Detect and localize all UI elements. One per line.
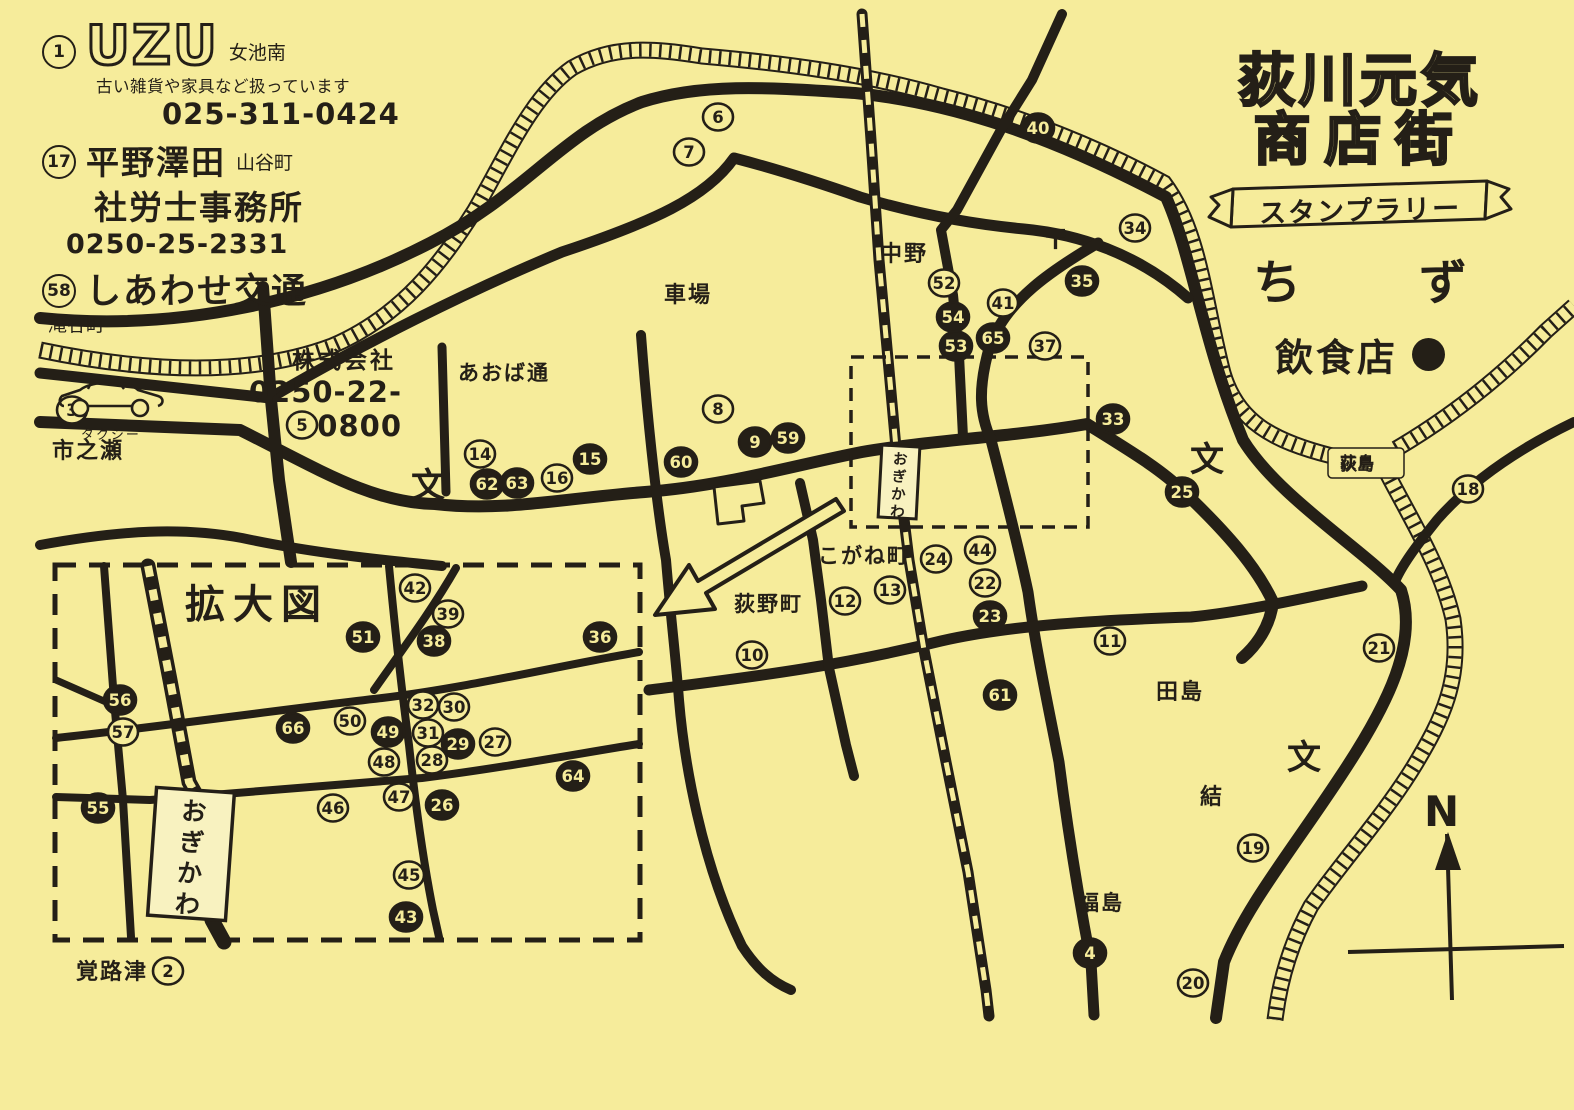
- stamp-marker-number: 43: [395, 908, 418, 927]
- road: [56, 680, 106, 702]
- stamp-marker-number: 22: [974, 574, 997, 593]
- road: [1394, 422, 1574, 584]
- ad-name: しあわせ交通: [86, 274, 308, 311]
- map-word-row: ち ず: [1205, 243, 1515, 313]
- stamp-marker-number: 61: [989, 686, 1012, 705]
- station-inset: おぎかわ: [148, 787, 235, 921]
- stamp-marker-16: 16: [542, 465, 572, 492]
- stamp-marker-65: 65: [977, 324, 1009, 353]
- stamp-marker-number: 20: [1182, 974, 1205, 993]
- legend-restaurant-label: 飲食店: [1275, 327, 1398, 382]
- ad-shiawase-kotsu: 58 しあわせ交通 滝谷町 タクシー 株式会社 0250: [42, 274, 402, 444]
- stamp-marker-41: 41: [988, 290, 1018, 317]
- map-title-line1: 荻川元気: [1205, 52, 1515, 111]
- place-label: 車場: [664, 283, 712, 308]
- ad-office-label: 社労士事務所: [94, 181, 402, 229]
- road: [104, 566, 131, 937]
- ad-area-label: 滝谷町: [48, 310, 402, 343]
- stamp-marker-35: 35: [1066, 267, 1098, 296]
- post-office-symbol: 〒: [1042, 225, 1069, 256]
- river-island-label: 荻島: [1340, 454, 1374, 475]
- stamp-marker-60: 60: [665, 448, 697, 477]
- ad-hirano-sawada: 17 平野澤田 山谷町 社労士事務所 0250-25-2331: [42, 145, 402, 260]
- ad-uzu: 1 UZU 女池南 古い雑貨や家具など扱っています 025-311-0424: [42, 22, 402, 131]
- stamp-marker-42: 42: [400, 575, 430, 602]
- stamp-marker-number: 47: [388, 788, 411, 807]
- stamp-marker-number: 16: [546, 469, 569, 488]
- stamp-marker-29: 29: [442, 730, 474, 759]
- stamp-marker-number: 30: [443, 698, 466, 717]
- ad-phone: 0250-25-2331: [66, 229, 402, 260]
- stamp-marker-39: 39: [433, 601, 463, 628]
- map-title-line2: 商店街: [1205, 111, 1515, 170]
- legend: 飲食店: [1205, 327, 1515, 382]
- place-label: 福島: [1077, 891, 1124, 915]
- stamp-marker-number: 59: [777, 429, 800, 448]
- place-label: 荻野町: [734, 592, 803, 616]
- stamp-marker-number: 31: [417, 724, 440, 743]
- stamp-marker-50: 50: [335, 708, 365, 735]
- stamp-marker-12: 12: [830, 588, 860, 615]
- stamp-marker-number: 29: [447, 735, 470, 754]
- stamp-marker-63: 63: [501, 469, 533, 498]
- stamp-marker-14: 14: [465, 441, 495, 468]
- stamp-marker-61: 61: [984, 681, 1016, 710]
- taxi-label: タクシー: [42, 424, 180, 443]
- stamp-marker-number: 65: [982, 329, 1005, 348]
- stamp-marker-number: 34: [1124, 219, 1147, 238]
- road: [40, 531, 442, 566]
- stamp-marker-number: 44: [969, 541, 992, 560]
- stamp-marker-57: 57: [108, 719, 138, 746]
- stamp-marker-number: 41: [992, 294, 1015, 313]
- stamp-marker-number: 28: [421, 751, 444, 770]
- stamp-marker-number: 46: [322, 799, 345, 818]
- inset-title: 拡大図: [185, 582, 329, 628]
- stamp-marker-number: 11: [1099, 632, 1122, 651]
- stamp-marker-51: 51: [347, 623, 379, 652]
- stamp-marker-31: 31: [413, 720, 443, 747]
- stamp-marker-number: 14: [469, 445, 492, 464]
- stamp-marker-number: 26: [431, 796, 454, 815]
- stamp-marker-number: 51: [352, 628, 375, 647]
- station-main: おぎかわ: [878, 445, 920, 521]
- building-outline: [714, 481, 764, 524]
- compass-north-label: N: [1424, 787, 1459, 836]
- inset-dashed-box: [55, 565, 640, 940]
- sponsor-ads: 1 UZU 女池南 古い雑貨や家具など扱っています 025-311-0424 1…: [42, 22, 402, 457]
- stamp-marker-number: 27: [484, 733, 507, 752]
- stamp-marker-number: 24: [925, 550, 948, 569]
- stamp-marker-number: 54: [942, 308, 965, 327]
- stamp-marker-40: 40: [1022, 114, 1054, 143]
- school-symbol: 文: [1190, 440, 1224, 480]
- place-label: 中野: [880, 242, 928, 267]
- stamp-marker-56: 56: [104, 686, 136, 715]
- stamp-marker-54: 54: [937, 303, 969, 332]
- banner-label: スタンプラリー: [1205, 184, 1516, 231]
- stamp-marker-number: 66: [282, 719, 305, 738]
- ad-description: 古い雑貨や家具など扱っています: [96, 73, 402, 97]
- stamp-marker-number: 18: [1457, 480, 1480, 499]
- stamp-marker-number: 50: [339, 712, 362, 731]
- stamp-marker-number: 25: [1171, 483, 1194, 502]
- stamp-marker-number: 12: [834, 592, 857, 611]
- stamp-marker-number: 56: [109, 691, 132, 710]
- stamp-marker-number: 35: [1071, 272, 1094, 291]
- stamp-marker-48: 48: [369, 749, 399, 776]
- ad-area-label: 女池南: [229, 38, 286, 71]
- stamp-marker-number: 10: [741, 646, 764, 665]
- stamp-marker-6: 6: [703, 104, 733, 131]
- uzu-logo: UZU: [86, 22, 219, 71]
- stamp-marker-number: 2: [162, 962, 173, 981]
- stamp-marker-number: 36: [589, 628, 612, 647]
- stamp-rally-map-sheet: おぎかわ おぎかわ N 市之瀬あおば通車場中野こがね町荻野町田島結福島覚路津荻島…: [0, 0, 1574, 1110]
- ad-phone: 025-311-0424: [162, 97, 402, 131]
- ad-company-label: 株式会社: [184, 341, 396, 375]
- stamp-marker-number: 64: [562, 767, 585, 786]
- stamp-marker-20: 20: [1178, 970, 1208, 997]
- stamp-number-badge: 17: [42, 145, 76, 179]
- stamp-marker-number: 9: [749, 433, 760, 452]
- school-symbol: 文: [411, 466, 445, 506]
- stamp-marker-49: 49: [372, 718, 404, 747]
- stamp-marker-number: 33: [1102, 410, 1125, 429]
- stamp-marker-38: 38: [418, 627, 450, 656]
- place-label: 覚路津: [76, 959, 148, 985]
- stamp-marker-number: 23: [979, 607, 1002, 626]
- stamp-marker-number: 53: [945, 337, 968, 356]
- stamp-marker-64: 64: [557, 762, 589, 791]
- ad-area-label: 山谷町: [236, 148, 293, 181]
- stamp-marker-number: 39: [437, 605, 460, 624]
- stamp-marker-number: 45: [398, 866, 421, 885]
- stamp-marker-number: 13: [879, 581, 902, 600]
- stamp-number-badge: 1: [42, 35, 76, 69]
- stamp-marker-27: 27: [480, 729, 510, 756]
- stamp-marker-59: 59: [772, 424, 804, 453]
- stamp-marker-number: 4: [1084, 944, 1095, 963]
- stamp-marker-18: 18: [1453, 476, 1483, 503]
- taxi-icon: [52, 372, 170, 420]
- stamp-marker-7: 7: [674, 139, 704, 166]
- stamp-marker-number: 57: [112, 723, 135, 742]
- stamp-marker-number: 6: [712, 108, 723, 127]
- stamp-marker-32: 32: [408, 692, 438, 719]
- stamp-marker-4: 4: [1074, 939, 1106, 968]
- stamp-marker-number: 32: [412, 696, 435, 715]
- stamp-marker-number: 21: [1368, 639, 1391, 658]
- stamp-marker-number: 38: [423, 632, 446, 651]
- map-word-right: ず: [1419, 243, 1467, 313]
- stamp-marker-36: 36: [584, 623, 616, 652]
- place-label: こがね町: [818, 544, 910, 568]
- school-symbol: 文: [1287, 738, 1321, 778]
- stamp-marker-2: 2: [153, 958, 183, 985]
- stamp-marker-number: 15: [579, 450, 602, 469]
- stamp-marker-number: 62: [476, 475, 499, 494]
- stamp-marker-number: 52: [933, 274, 956, 293]
- ad-name: 平野澤田: [86, 146, 226, 181]
- stamp-marker-46: 46: [318, 795, 348, 822]
- stamp-marker-21: 21: [1364, 635, 1394, 662]
- stamp-marker-23: 23: [974, 602, 1006, 631]
- road: [56, 744, 639, 800]
- stamp-marker-34: 34: [1120, 215, 1150, 242]
- stamp-marker-26: 26: [426, 791, 458, 820]
- stamp-marker-33: 33: [1097, 405, 1129, 434]
- title-banner: スタンプラリー: [1205, 175, 1515, 235]
- restaurant-dot-icon: [1412, 338, 1445, 371]
- stamp-marker-55: 55: [82, 794, 114, 823]
- stamp-marker-66: 66: [277, 714, 309, 743]
- ad-phone: 0250-22-0800: [184, 375, 402, 443]
- stamp-marker-30: 30: [439, 694, 469, 721]
- stamp-marker-19: 19: [1238, 835, 1268, 862]
- stamp-marker-15: 15: [574, 445, 606, 474]
- stamp-marker-number: 63: [506, 474, 529, 493]
- stamp-marker-43: 43: [390, 903, 422, 932]
- stamp-marker-25: 25: [1166, 478, 1198, 507]
- stamp-number-badge: 58: [42, 274, 76, 308]
- stamp-marker-22: 22: [970, 570, 1000, 597]
- stamp-marker-9: 9: [739, 428, 771, 457]
- stamp-marker-8: 8: [703, 396, 733, 423]
- stamp-marker-47: 47: [384, 784, 414, 811]
- stamp-marker-37: 37: [1030, 333, 1060, 360]
- stamp-marker-13: 13: [875, 577, 905, 604]
- stamp-marker-52: 52: [929, 270, 959, 297]
- stamp-marker-number: 37: [1034, 337, 1057, 356]
- stamp-marker-number: 42: [404, 579, 427, 598]
- stamp-marker-number: 55: [87, 799, 110, 818]
- stamp-marker-number: 48: [373, 753, 396, 772]
- stamp-marker-53: 53: [940, 332, 972, 361]
- stamp-marker-62: 62: [471, 470, 503, 499]
- stamp-marker-number: 19: [1242, 839, 1265, 858]
- map-word-left: ち: [1253, 243, 1301, 313]
- stamp-marker-11: 11: [1095, 628, 1125, 655]
- place-label: 田島: [1156, 679, 1204, 705]
- stamp-marker-44: 44: [965, 537, 995, 564]
- stamp-marker-number: 7: [683, 143, 694, 162]
- title-block: 荻川元気 商店街 スタンプラリー ち ず 飲食店: [1205, 52, 1515, 382]
- place-label: 結: [1200, 784, 1224, 810]
- stamp-marker-number: 49: [377, 723, 400, 742]
- stamp-marker-45: 45: [394, 862, 424, 889]
- stamp-marker-number: 60: [670, 453, 693, 472]
- inset-roads: [56, 566, 639, 937]
- stamp-marker-number: 8: [712, 400, 723, 419]
- stamp-marker-24: 24: [921, 546, 951, 573]
- stamp-marker-10: 10: [737, 642, 767, 669]
- stamp-marker-number: 40: [1027, 119, 1050, 138]
- place-label: あおば通: [458, 361, 550, 385]
